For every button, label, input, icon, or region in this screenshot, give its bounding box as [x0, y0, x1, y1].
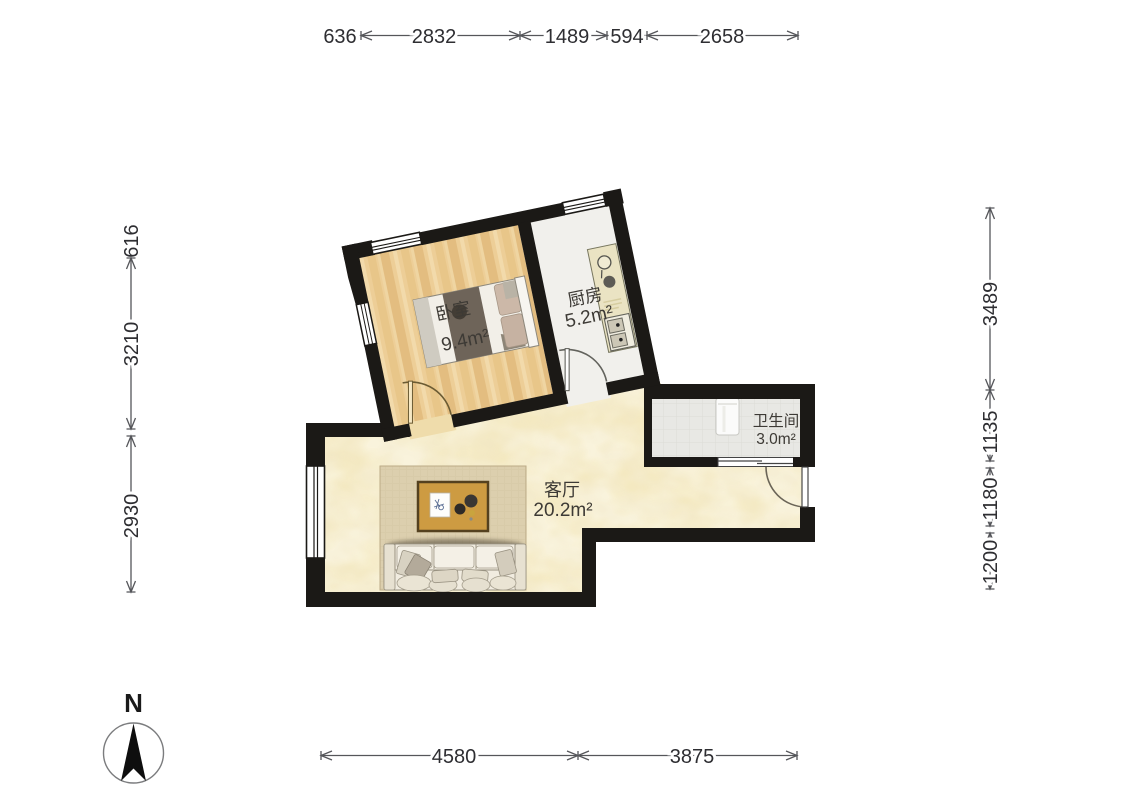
svg-text:2832: 2832 — [412, 26, 457, 48]
svg-text:594: 594 — [610, 26, 643, 48]
svg-text:20.2m²: 20.2m² — [533, 500, 592, 521]
svg-text:2658: 2658 — [700, 26, 745, 48]
svg-text:616: 616 — [121, 224, 143, 257]
svg-text:1180: 1180 — [980, 477, 1002, 520]
svg-text:客厅: 客厅 — [544, 480, 580, 500]
svg-text:卫生间: 卫生间 — [753, 412, 800, 430]
svg-text:4580: 4580 — [432, 746, 477, 768]
svg-text:1135: 1135 — [980, 410, 1002, 453]
svg-text:3489: 3489 — [980, 282, 1002, 327]
svg-text:N: N — [124, 688, 143, 718]
svg-text:3.0m²: 3.0m² — [756, 431, 796, 448]
svg-text:1200: 1200 — [980, 540, 1002, 585]
svg-text:1489: 1489 — [545, 26, 590, 48]
svg-text:3210: 3210 — [121, 322, 143, 367]
svg-text:2930: 2930 — [121, 494, 143, 539]
svg-text:3875: 3875 — [670, 746, 715, 768]
svg-text:636: 636 — [323, 26, 356, 48]
